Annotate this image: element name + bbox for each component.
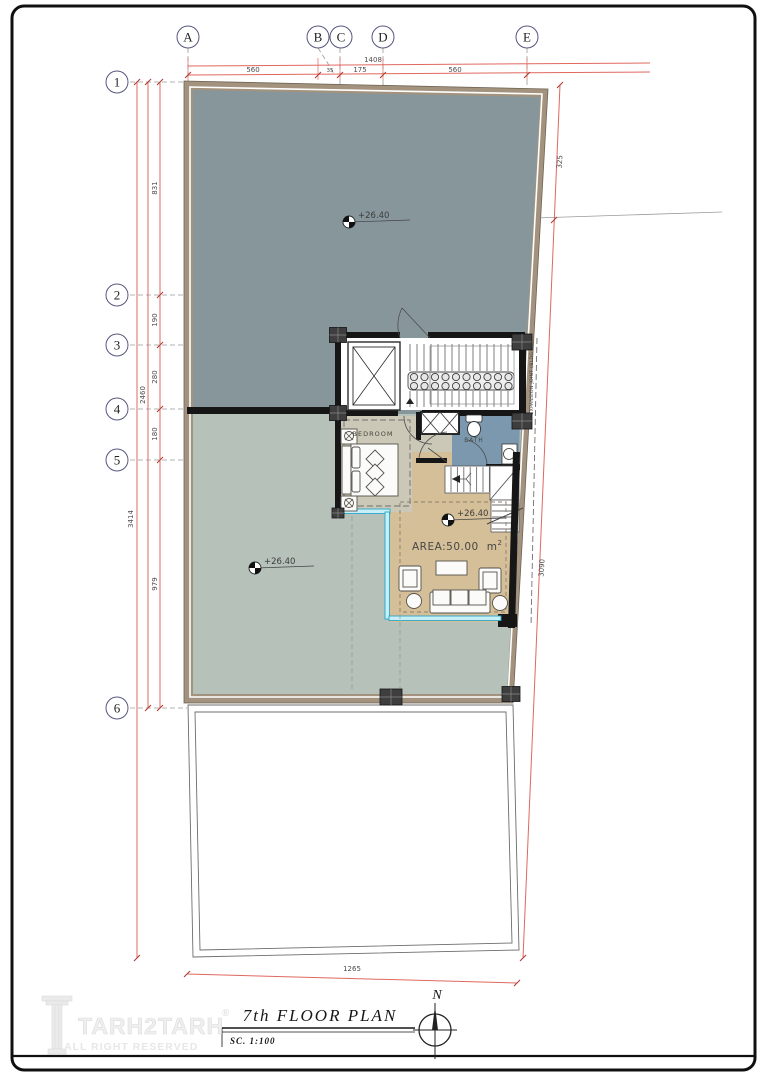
dimension-left: 3414 2460 831 190 280 180 979 [127,82,160,958]
armchair-left [399,566,421,591]
level-value: +26.40 [358,211,389,221]
unit-west-window [385,512,390,619]
grid-col-a: A [183,30,193,45]
coffee-table [436,561,467,575]
main-stair [406,342,517,408]
site-boundary [188,705,519,957]
grid-row-4: 4 [114,402,121,417]
dim-b-c: 35 [327,68,334,74]
logo-tagline: ALL RIGHT RESERVED [64,1041,198,1053]
unit-south-window [389,616,501,621]
bed [342,444,398,496]
grid-row-3: 3 [114,338,121,353]
grid-row-6: 6 [114,701,121,716]
dim-4-5: 180 [151,427,159,440]
logo-registered: ® [222,1008,230,1019]
duct-shaft [421,412,459,434]
sheet-title: 7th FLOOR PLAN [243,1006,398,1025]
logo-name: TARH2TARH [78,1013,224,1039]
logo: TARH2TARH ® ALL RIGHT RESERVED [42,996,230,1054]
dimension-bottom: 1265 [187,965,517,983]
drawing-sheet: EXPANSION JOINT (BLDG 20) +26.40 +26.40 … [0,0,767,1080]
dim-right-upper: 325 [556,155,565,169]
grid-row-5: 5 [114,453,121,468]
dim-3-4: 280 [151,370,159,383]
sofa [430,590,490,613]
level-value: +26.40 [264,557,295,567]
dim-right-lower: 3090 [537,559,546,577]
sheet-scale: SC. 1:100 [230,1036,276,1046]
dimension-top: 1408 560 35 175 560 [188,56,650,80]
toilet-icon [466,415,482,437]
dim-d-e: 560 [448,66,461,74]
armchair-right [479,568,501,593]
side-table-left [407,594,422,609]
expansion-joint-label: EXPANSION JOINT (BLDG 20) [529,341,535,414]
north-needle [432,1006,438,1030]
grid-col-d: D [378,30,387,45]
dim-left-outer: 3414 [127,510,135,528]
title-block: 7th FLOOR PLAN SC. 1:100 [222,1006,415,1047]
bedroom-west-wall [335,416,341,512]
grid-bubbles-left: 1 2 3 4 5 6 [106,71,128,719]
dim-5-6: 979 [151,577,159,590]
dim-top-total: 1408 [364,56,382,64]
dim-a-b: 560 [246,66,259,74]
expansion-joint: EXPANSION JOINT (BLDG 20) [529,338,537,626]
level-value: +26.40 [457,509,488,519]
area-label: AREA:50.00m2 [412,539,502,553]
grid-row-2: 2 [114,288,121,303]
dim-2-3: 190 [151,313,159,326]
floor-plan-canvas: EXPANSION JOINT (BLDG 20) +26.40 +26.40 … [0,0,767,1080]
bedroom-label: BEDROOM [353,430,394,438]
north-arrow: N [413,988,457,1059]
grid-col-c: C [337,30,346,45]
dim-left-total: 2460 [139,386,147,404]
elevator [348,342,400,410]
main-cross-wall [187,407,341,414]
north-label: N [431,988,442,1003]
grid-col-e: E [523,30,531,45]
dim-c-d: 175 [353,66,366,74]
boundary-extension-line [535,212,722,218]
dim-1-2: 831 [151,181,159,194]
grid-bubbles-top: A B C D E [177,26,538,48]
side-table-right [493,596,508,611]
grid-row-1: 1 [114,75,121,90]
grid-col-b: B [314,30,323,45]
dim-bottom: 1265 [343,965,361,973]
bath-label: BATH [464,438,483,444]
